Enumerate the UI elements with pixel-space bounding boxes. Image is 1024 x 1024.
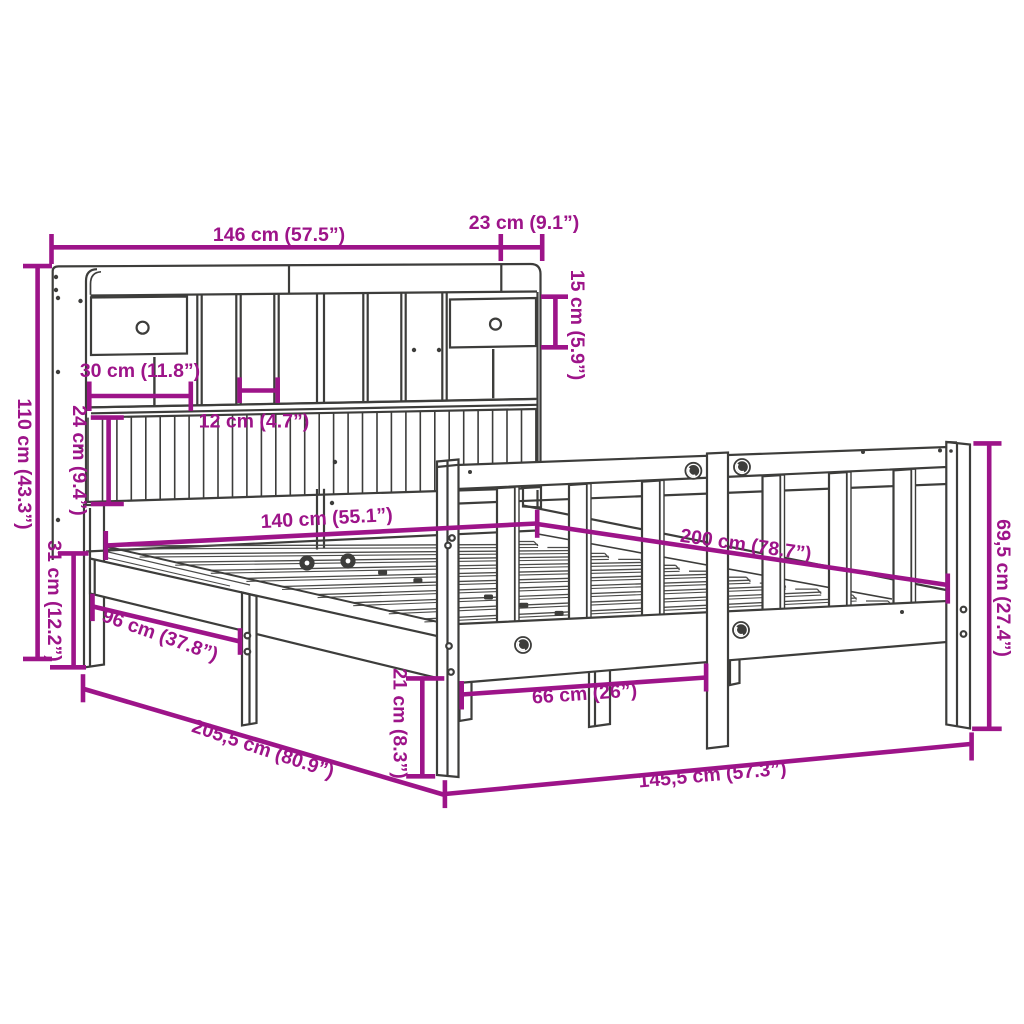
svg-text:30 cm (11.8”): 30 cm (11.8”) [80,360,200,382]
svg-text:146 cm (57.5”): 146 cm (57.5”) [213,224,345,246]
svg-text:24 cm (9.4”): 24 cm (9.4”) [68,405,90,516]
svg-text:110 cm (43.3”): 110 cm (43.3”) [13,398,35,529]
svg-text:21 cm (8.3”): 21 cm (8.3”) [389,668,411,779]
svg-text:23 cm (9.1”): 23 cm (9.1”) [469,212,580,234]
svg-text:15 cm (5.9”): 15 cm (5.9”) [566,270,588,381]
svg-text:69,5 cm (27.4”): 69,5 cm (27.4”) [992,519,1014,657]
svg-text:31 cm (12.2”): 31 cm (12.2”) [43,540,65,661]
svg-text:12 cm (4.7”): 12 cm (4.7”) [199,411,310,433]
